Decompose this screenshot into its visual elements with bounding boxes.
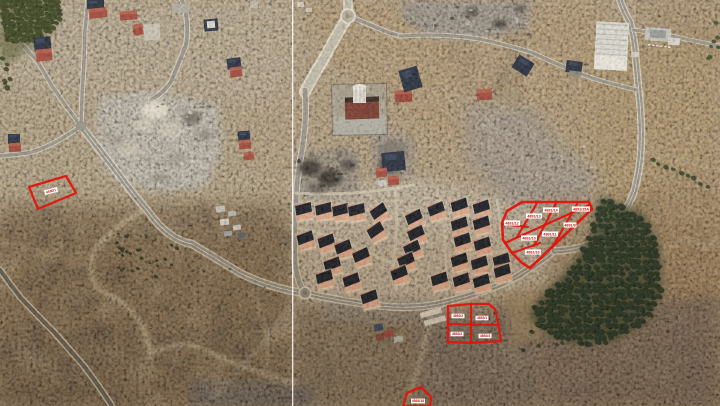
svg-text:4891/10: 4891/10: [522, 236, 535, 240]
svg-text:4891/11: 4891/11: [543, 232, 556, 236]
svg-text:4891/15A: 4891/15A: [573, 207, 589, 211]
svg-text:4891/9: 4891/9: [564, 223, 575, 227]
svg-text:4892/1: 4892/1: [477, 316, 487, 320]
svg-text:4891/16: 4891/16: [526, 250, 539, 254]
svg-text:4892/4: 4892/4: [480, 334, 490, 338]
svg-text:4892/18: 4892/18: [412, 399, 424, 403]
svg-text:4892/2: 4892/2: [453, 314, 463, 318]
svg-text:4892/3: 4892/3: [452, 332, 462, 336]
svg-text:4891/13: 4891/13: [527, 214, 540, 218]
svg-text:4891/12: 4891/12: [505, 221, 518, 225]
svg-text:4891/14: 4891/14: [544, 208, 558, 212]
